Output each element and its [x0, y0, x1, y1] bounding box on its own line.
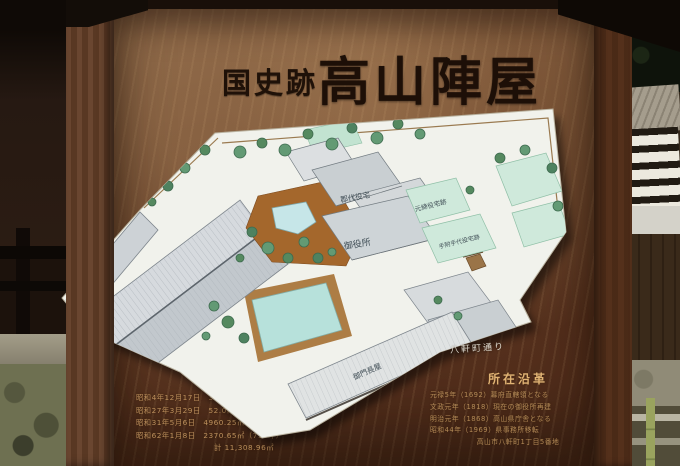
sign-right-post — [594, 0, 632, 466]
sign-left-post — [66, 0, 114, 466]
photo-of-takayama-jinya-sign: 国史跡 高山陣屋 — [0, 0, 680, 466]
